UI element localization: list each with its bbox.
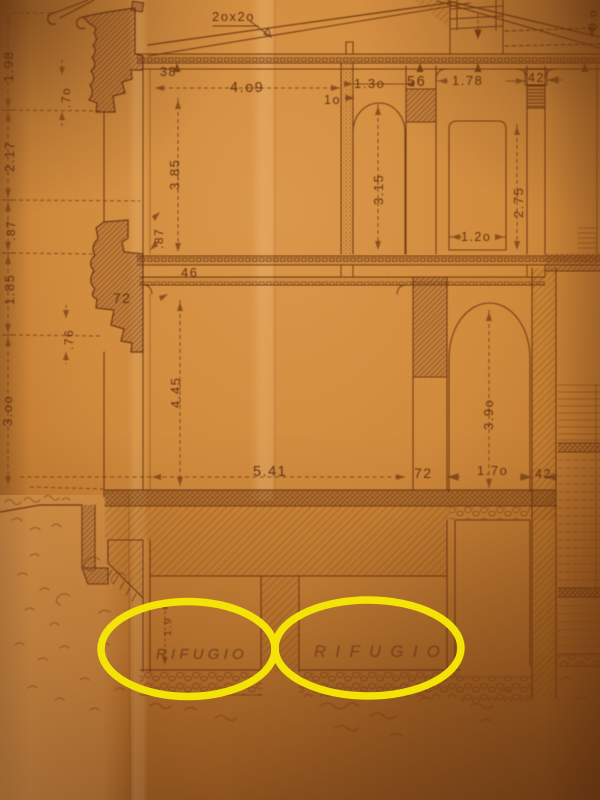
svg-text:.87: .87 bbox=[4, 220, 18, 241]
svg-text:46: 46 bbox=[181, 265, 198, 280]
svg-text:RIFUGIO: RIFUGIO bbox=[314, 643, 449, 661]
svg-text:72: 72 bbox=[113, 290, 132, 306]
svg-text:.76: .76 bbox=[62, 329, 76, 350]
svg-text:1.9: 1.9 bbox=[162, 617, 174, 636]
svg-text:3.9o: 3.9o bbox=[481, 399, 496, 430]
svg-text:1.2o: 1.2o bbox=[461, 230, 491, 244]
svg-text:72: 72 bbox=[414, 465, 433, 481]
svg-text:3.85: 3.85 bbox=[167, 159, 182, 190]
svg-text:1.7o: 1.7o bbox=[477, 463, 508, 478]
svg-text:1.85: 1.85 bbox=[2, 274, 17, 305]
svg-text:38: 38 bbox=[160, 65, 177, 79]
svg-text:2.75: 2.75 bbox=[511, 187, 526, 218]
svg-text:2ox2o: 2ox2o bbox=[212, 9, 255, 24]
svg-text:1.98: 1.98 bbox=[1, 51, 16, 82]
svg-text:3.15: 3.15 bbox=[371, 174, 386, 205]
svg-text:1.78: 1.78 bbox=[452, 73, 483, 88]
svg-text:.7o: .7o bbox=[59, 87, 73, 108]
svg-text:4.45: 4.45 bbox=[168, 377, 183, 408]
svg-text:RIFUGIO: RIFUGIO bbox=[156, 646, 248, 663]
svg-text:4.o9: 4.o9 bbox=[230, 80, 264, 96]
svg-text:42: 42 bbox=[528, 71, 545, 85]
svg-text:.87: .87 bbox=[152, 228, 166, 249]
svg-text:1.3o: 1.3o bbox=[354, 76, 385, 91]
svg-text:56: 56 bbox=[407, 74, 426, 90]
svg-text:5.41: 5.41 bbox=[253, 464, 287, 480]
svg-text:2.17: 2.17 bbox=[2, 141, 17, 172]
svg-text:3.oo: 3.oo bbox=[0, 395, 15, 426]
svg-text:3.o: 3.o bbox=[586, 9, 600, 30]
svg-text:42: 42 bbox=[535, 467, 552, 481]
svg-text:1o: 1o bbox=[324, 93, 341, 107]
